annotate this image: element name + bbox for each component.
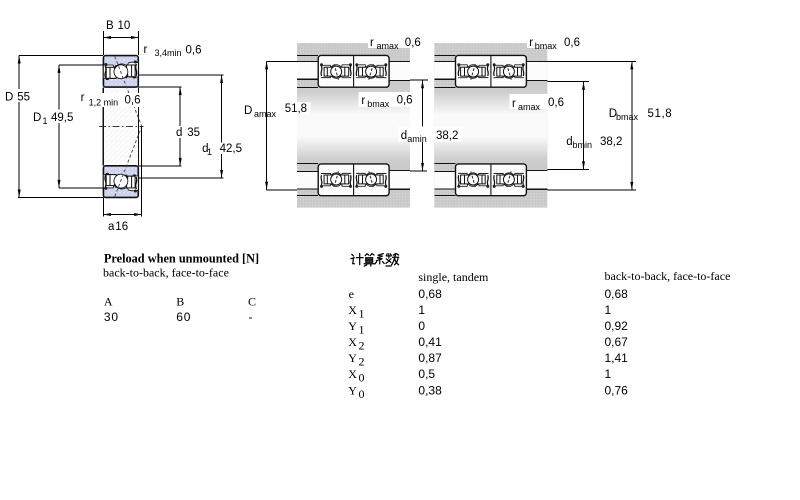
svg-text:0,38: 0,38 [418,383,442,397]
svg-text:amax: amax [254,109,277,119]
svg-text:1: 1 [359,307,365,321]
svg-text:42,5: 42,5 [220,143,242,155]
svg-text:16: 16 [115,221,128,233]
svg-text:bmin: bmin [573,140,593,150]
svg-text:D: D [33,112,41,124]
svg-text:35: 35 [187,127,200,139]
svg-text:r: r [512,98,516,110]
svg-text:Y: Y [348,383,357,397]
svg-text:1: 1 [207,147,212,157]
svg-text:0,6: 0,6 [405,37,421,49]
svg-text:1: 1 [605,303,612,317]
svg-text:amax: amax [377,41,400,51]
svg-text:r: r [370,37,374,49]
svg-text:38,2: 38,2 [600,136,622,148]
svg-text:r: r [144,44,148,56]
svg-text:0,6: 0,6 [564,37,580,49]
svg-text:1: 1 [359,323,365,337]
svg-text:r: r [361,95,365,107]
svg-text:e: e [349,287,354,301]
svg-text:1: 1 [43,116,48,126]
svg-text:Preload when unmounted [N]: Preload when unmounted [N] [104,252,259,266]
svg-text:51,8: 51,8 [285,103,307,115]
svg-text:0,6: 0,6 [548,97,564,109]
svg-text:30: 30 [104,310,119,324]
svg-text:bmax: bmax [616,112,639,122]
svg-text:X: X [348,303,357,317]
svg-text:d: d [176,127,182,139]
svg-text:1,41: 1,41 [605,351,629,365]
svg-text:amin: amin [407,134,427,144]
svg-text:10: 10 [118,20,131,32]
svg-text:0: 0 [418,319,425,333]
svg-text:0: 0 [359,371,365,385]
svg-text:a: a [108,221,115,233]
svg-text:1: 1 [418,303,425,317]
svg-text:2: 2 [359,355,365,369]
svg-text:2: 2 [359,339,365,353]
svg-text:0: 0 [359,387,365,401]
svg-text:X: X [348,367,357,381]
svg-text:Y: Y [348,351,357,365]
svg-text:55: 55 [17,92,30,104]
svg-text:51,8: 51,8 [648,108,673,120]
svg-text:B: B [106,20,114,32]
svg-text:0,6: 0,6 [125,95,141,107]
svg-text:amax: amax [518,102,541,112]
svg-text:0,92: 0,92 [605,319,629,333]
svg-text:0,68: 0,68 [605,287,629,301]
svg-text:D: D [5,92,13,104]
svg-text:single, tandem: single, tandem [418,270,489,284]
svg-text:0,76: 0,76 [605,383,629,397]
svg-text:0,41: 0,41 [418,335,442,349]
svg-text:Y: Y [348,319,357,333]
svg-text:r: r [529,37,533,49]
svg-text:0,6: 0,6 [397,95,413,107]
svg-text:0,67: 0,67 [605,335,629,349]
svg-text:3,4min: 3,4min [155,48,182,58]
svg-text:1: 1 [605,367,612,381]
svg-text:0,87: 0,87 [418,351,442,365]
svg-text:-: - [249,310,253,324]
svg-text:0,68: 0,68 [418,287,442,301]
svg-text:back-to-back, face-to-face: back-to-back, face-to-face [103,266,229,280]
svg-text:1,2 min: 1,2 min [89,98,119,108]
svg-text:B: B [176,295,184,309]
svg-text:D: D [244,105,252,117]
svg-text:60: 60 [176,310,191,324]
svg-text:38,2: 38,2 [436,130,458,142]
svg-text:49,5: 49,5 [51,112,73,124]
svg-text:bmax: bmax [535,41,558,51]
svg-text:bmax: bmax [367,99,390,109]
svg-text:0,5: 0,5 [418,367,435,381]
svg-text:back-to-back, face-to-face: back-to-back, face-to-face [605,269,731,283]
svg-text:0,6: 0,6 [186,45,202,57]
svg-text:C: C [248,295,256,309]
svg-text:A: A [104,295,113,309]
svg-text:r: r [81,92,85,104]
svg-text:X: X [348,335,357,349]
svg-text:d: d [401,130,407,142]
